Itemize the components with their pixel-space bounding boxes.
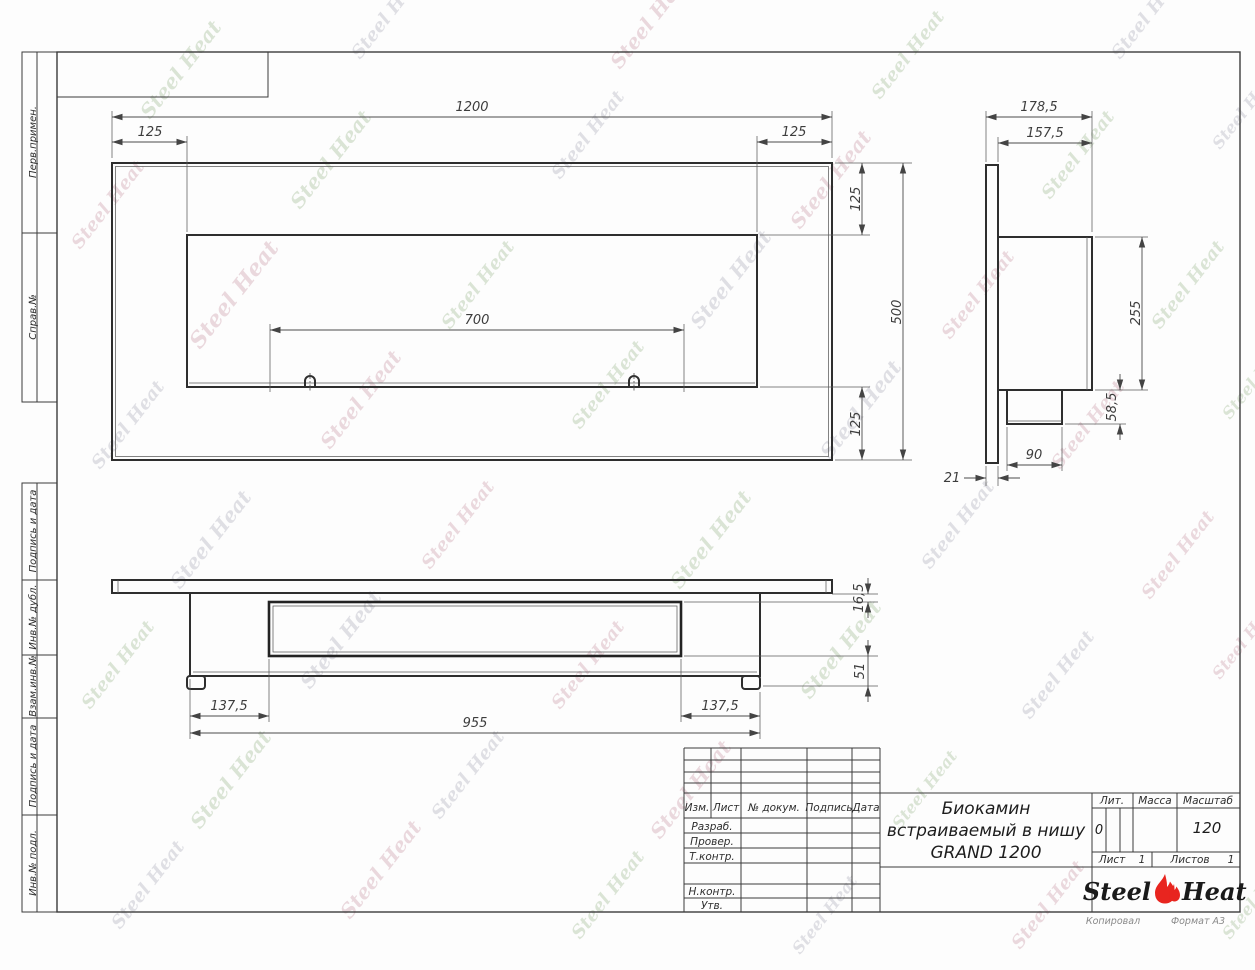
watermark-text: Steel Heat (547, 86, 629, 183)
watermark-text: Steel Heat (917, 476, 999, 573)
sheet-label: Лист (1098, 854, 1126, 866)
dim-bottom-inset-right: 137,5 (701, 699, 738, 714)
watermark-text: Steel Heat (547, 616, 629, 713)
watermark-text: Steel Heat (1017, 626, 1099, 723)
dim-side-box-depth: 90 (1026, 448, 1043, 463)
bottom-view: 16,5 51 137,5 137,5 955 (112, 578, 878, 739)
frame-label-sprav-no: Справ.№ (28, 294, 39, 339)
kopiroval-note: Копировал (1086, 916, 1140, 927)
frame-label-inv-podl: Инв.№ подл. (28, 830, 39, 896)
logo-steel-text: Steel (1083, 877, 1151, 906)
dim-bottom-lip: 16,5 (852, 584, 867, 613)
dim-front-left: 125 (138, 125, 163, 140)
watermark-text: Steel Heat (315, 345, 407, 453)
sheets-label: Листов (1169, 854, 1209, 866)
side-stamp-group-a (22, 52, 57, 402)
watermark-layer: Steel HeatSteel HeatSteel HeatSteel Heat… (67, 0, 1255, 957)
dim-bottom-inset-left: 137,5 (210, 699, 247, 714)
watermark-text: Steel Heat (1218, 336, 1255, 422)
drawing-sheet: Steel HeatSteel HeatSteel HeatSteel Heat… (0, 0, 1255, 970)
dim-front-right: 125 (782, 125, 807, 140)
dim-side-body-depth: 157,5 (1026, 126, 1063, 141)
scale-label: Масштаб (1183, 795, 1233, 807)
bottom-panel-bar (112, 580, 832, 593)
frame-label-inv-dubl: Инв.№ дубл. (27, 584, 39, 649)
watermark-text: Steel Heat (1137, 506, 1219, 603)
watermark-text: Steel Heat (67, 156, 149, 253)
scale-value: 120 (1193, 819, 1222, 837)
watermark-text: Steel Heat (1147, 236, 1229, 333)
watermark-text: Steel Heat (1037, 106, 1119, 203)
watermark-text: Steel Heat (937, 246, 1019, 343)
dim-side-body-height: 255 (1129, 301, 1144, 326)
col-izm: Изм. (685, 802, 710, 814)
doc-title-line3: GRAND 1200 (930, 843, 1041, 863)
dim-bottom-body-width: 955 (463, 716, 488, 731)
watermark-text: Steel Heat (165, 485, 257, 593)
frame-label-perv-primen: Перв.примен. (28, 106, 39, 178)
dim-front-burner: 700 (465, 313, 490, 328)
watermark-text: Steel Heat (77, 616, 159, 713)
watermark-text: Steel Heat (605, 0, 697, 73)
watermark-text: Steel Heat (567, 336, 649, 433)
watermark-text: Steel Heat (135, 15, 227, 123)
row-nkontr: Н.контр. (689, 886, 736, 898)
watermark-text: Steel Heat (665, 485, 757, 593)
watermark-text: Steel Heat (1007, 856, 1089, 953)
frame-label-podpis-data-2: Подпись и дата (28, 725, 39, 808)
title-block: Изм. Лист № докум. Подпись Дата Разраб. … (684, 748, 1247, 927)
watermark-text: Steel Heat (888, 746, 961, 832)
watermark-text: Steel Heat (335, 815, 427, 923)
row-prover: Провер. (690, 836, 734, 848)
dim-front-height: 500 (890, 300, 905, 325)
lit-label: Лит. (1099, 795, 1124, 807)
bottom-body-outline (190, 593, 760, 676)
frame-label-vzam-inv: Взам.инв.№ (28, 655, 39, 717)
engineering-drawing: Steel HeatSteel HeatSteel HeatSteel Heat… (0, 0, 1255, 970)
col-list: Лист (712, 802, 740, 814)
row-utv: Утв. (701, 900, 723, 912)
watermark-text: Steel Heat (1208, 66, 1255, 152)
side-lower-box (1007, 390, 1062, 424)
dim-side-panel-thickness: 21 (944, 471, 961, 486)
watermark-text: Steel Heat (285, 105, 377, 213)
logo-heat-text: Heat (1181, 877, 1247, 906)
watermark-text: Steel Heat (1208, 596, 1255, 682)
dim-front-width: 1200 (455, 100, 488, 115)
watermark-text: Steel Heat (185, 725, 277, 833)
sheet-value: 1 (1139, 854, 1146, 866)
side-front-panel (986, 165, 998, 463)
watermark-text: Steel Heat (87, 376, 169, 473)
steelheat-logo: Steel Heat (1083, 874, 1247, 906)
watermark-text: Steel Heat (417, 476, 499, 573)
watermark-text: Steel Heat (427, 726, 509, 823)
row-razrab: Разраб. (691, 821, 732, 833)
watermark-text: Steel Heat (867, 6, 949, 103)
lit-value: 0 (1095, 823, 1103, 838)
doc-title-line1: Биокамин (942, 799, 1031, 819)
watermark-text: Steel Heat (184, 236, 284, 354)
col-data: Дата (851, 802, 879, 814)
format-note: Формат А3 (1171, 916, 1225, 927)
watermark-text: Steel Heat (785, 125, 877, 233)
watermark-text: Steel Heat (347, 0, 429, 63)
watermark-text: Steel Heat (567, 846, 649, 943)
bottom-foot-right (742, 676, 760, 689)
doc-title-line2: встраиваемый в нишу (887, 821, 1086, 841)
watermark-text: Steel Heat (1107, 0, 1189, 63)
col-podpis: Подпись (805, 802, 852, 814)
dim-side-total-depth: 178,5 (1020, 100, 1057, 115)
row-tkontr: Т.контр. (689, 851, 735, 863)
dim-front-top: 125 (849, 187, 864, 212)
col-dokum: № докум. (747, 802, 800, 814)
dim-side-box-height: 58,5 (1105, 393, 1120, 422)
dim-bottom-depth: 51 (853, 663, 868, 680)
frame-label-podpis-data-1: Подпись и дата (28, 490, 39, 573)
watermark-text: Steel Heat (685, 225, 777, 333)
mass-label: Масса (1138, 795, 1171, 807)
sheets-value: 1 (1228, 854, 1235, 866)
dim-front-bottom: 125 (849, 412, 864, 437)
watermark-text: Steel Heat (795, 595, 887, 703)
watermark-text: Steel Heat (107, 836, 189, 933)
